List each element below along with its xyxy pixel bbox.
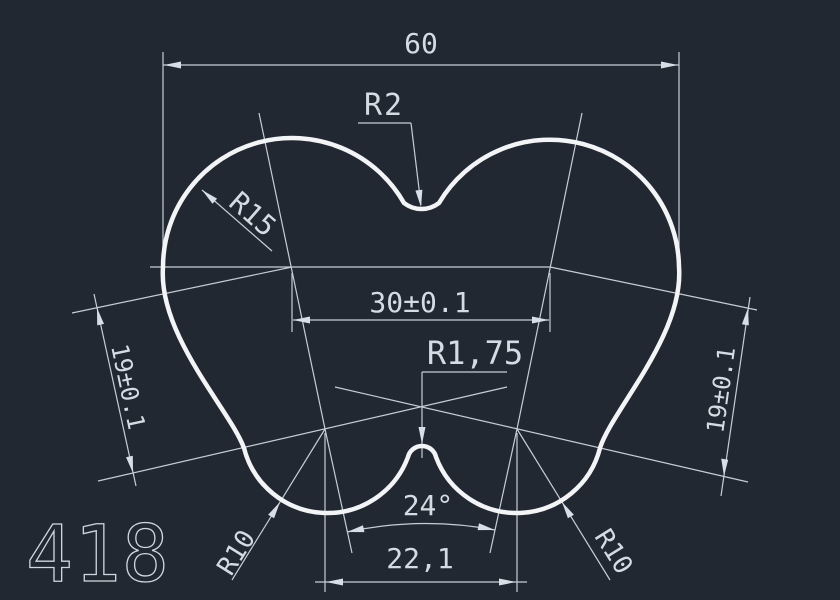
- arrowhead: [326, 579, 343, 586]
- radius-r175-label: R1,75: [427, 334, 523, 372]
- arrowhead: [742, 308, 749, 325]
- cad-canvas: 60 R2 R15 30±0.1 R1,75 19±0.1 19±0.1 24°: [0, 0, 840, 600]
- arrowhead: [126, 456, 133, 473]
- arrowhead: [499, 579, 516, 586]
- arrowhead: [347, 525, 364, 532]
- arrowhead: [97, 308, 104, 325]
- extension-line-19-right-top: [550, 267, 757, 310]
- arrowhead: [661, 62, 678, 69]
- extension-line-19-left-top: [72, 267, 292, 313]
- arrowhead: [164, 62, 181, 69]
- dim-side-height-right-label: 19±0.1: [701, 345, 741, 435]
- dim-bottom-distance-label: 22,1: [386, 542, 453, 575]
- radius-line-left-steep: [259, 113, 325, 429]
- arrowhead: [419, 427, 426, 444]
- radius-r15-label: R15: [223, 185, 283, 243]
- angle-line-left: [325, 429, 352, 553]
- dim-overall-width-label: 60: [404, 27, 438, 60]
- cad-drawing: 60 R2 R15 30±0.1 R1,75 19±0.1 19±0.1 24°: [0, 0, 840, 600]
- angle-dimension-arc: [347, 523, 495, 532]
- radius-construction-left-long: [98, 387, 507, 481]
- radius-line-right-steep: [517, 113, 582, 429]
- arrowhead: [562, 502, 574, 518]
- part-number-label: 418: [26, 510, 170, 600]
- arrowhead: [478, 523, 495, 530]
- leader-r175: [422, 372, 507, 458]
- radius-r10-right-label: R10: [588, 524, 638, 580]
- radius-r2-label: R2: [364, 88, 404, 123]
- radius-r10-left-label: R10: [212, 525, 262, 581]
- angle-24-label: 24°: [403, 489, 454, 522]
- angle-line-right: [490, 429, 517, 553]
- dim-center-distance-label: 30±0.1: [369, 286, 470, 319]
- arrowhead: [268, 502, 280, 518]
- dim-side-height-left-label: 19±0.1: [105, 342, 150, 433]
- dimension-60: [163, 52, 679, 260]
